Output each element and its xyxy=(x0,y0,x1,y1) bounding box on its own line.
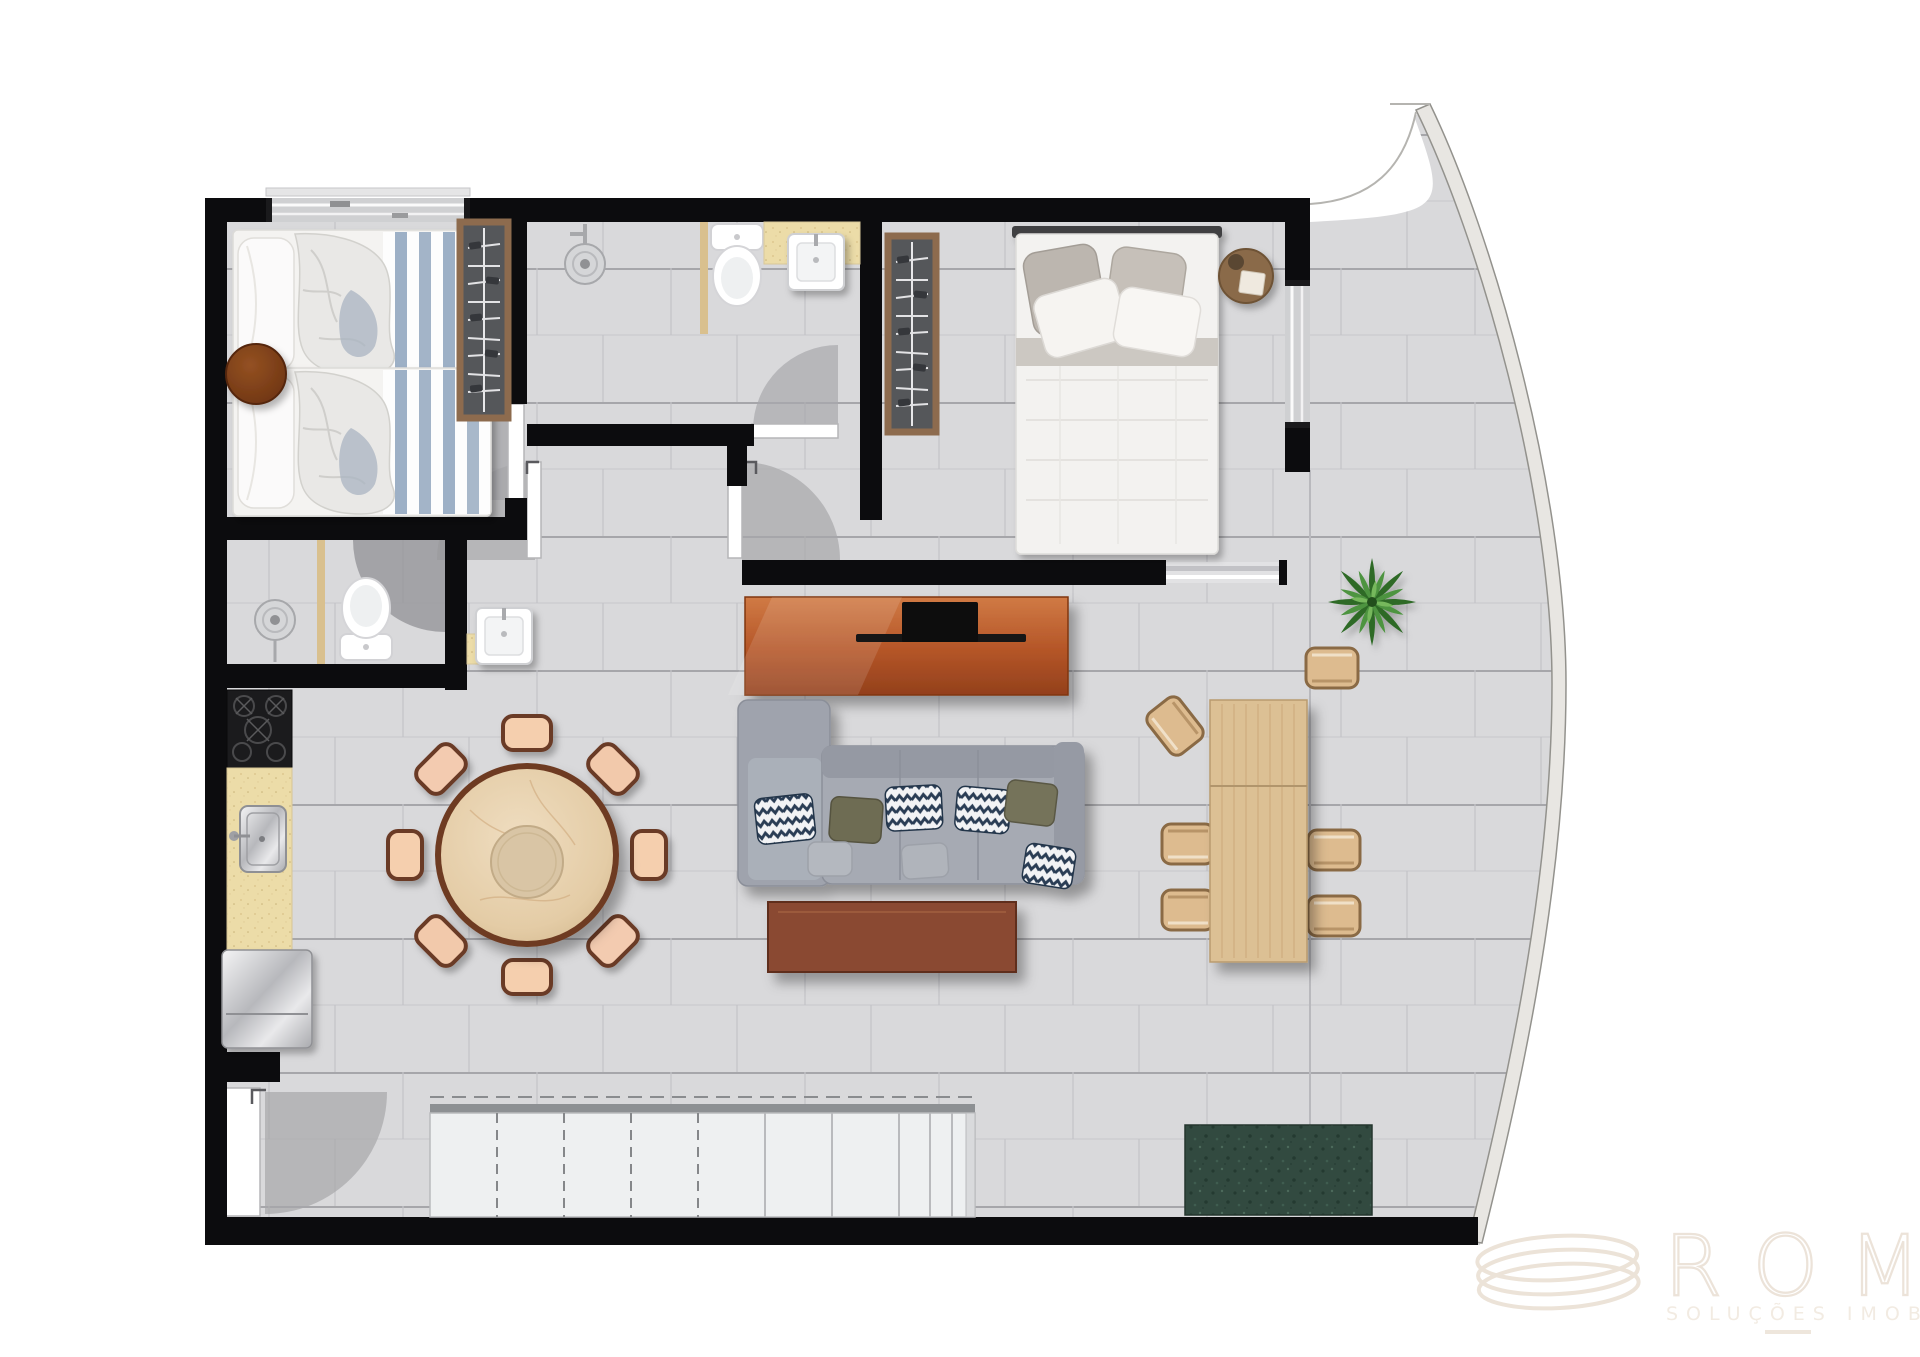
washbasin-icon xyxy=(788,234,844,290)
room-bedroom-twin xyxy=(226,222,508,516)
watermark-tagline: SOLUÇÕES IMOBILIÁRIAS xyxy=(1666,1302,1920,1325)
wood-chair-3 xyxy=(1162,824,1214,864)
window-bedroom-master xyxy=(1285,280,1310,428)
wall-bottom xyxy=(205,1217,1478,1245)
wood-table xyxy=(1210,700,1307,962)
wood-chair-4 xyxy=(1162,890,1214,930)
door-leaf-hall-left xyxy=(527,462,541,558)
double-bed xyxy=(1012,226,1222,554)
wall-bathroom-top-right xyxy=(860,198,882,520)
watermark: ROMA SOLUÇÕES IMOBILIÁRIAS xyxy=(1476,1217,1920,1334)
wall-bedroom-twin-bottom xyxy=(205,517,527,540)
shower-head-icon-2 xyxy=(255,600,295,640)
wall-bathroom-top-bottom xyxy=(527,424,754,446)
refrigerator xyxy=(222,950,312,1048)
wardrobe-twin xyxy=(460,222,508,418)
door-leaf-bathroom-top xyxy=(752,424,838,438)
wood-chair-2 xyxy=(1306,648,1358,688)
watermark-brand: ROMA xyxy=(1664,1217,1920,1315)
toilet-icon-2 xyxy=(340,578,392,660)
floor-plan-page: ROMA SOLUÇÕES IMOBILIÁRIAS xyxy=(0,0,1920,1357)
potted-plant xyxy=(1328,558,1416,646)
toilet-icon xyxy=(711,224,763,306)
granite-bench xyxy=(1185,1125,1372,1215)
cooktop xyxy=(227,690,292,768)
window-bedroom-twin xyxy=(266,188,470,222)
wardrobe-master xyxy=(888,236,936,432)
spiral-coil-logo-icon xyxy=(1476,1232,1640,1312)
washbasin-icon-2 xyxy=(476,608,532,664)
wall-left xyxy=(205,198,227,1245)
floor-plan-canvas: ROMA SOLUÇÕES IMOBILIÁRIAS xyxy=(0,0,1920,1357)
wall-stub-kitchen xyxy=(205,1052,280,1082)
shower-divider-2 xyxy=(317,540,325,664)
shower-head-icon xyxy=(565,244,605,284)
round-bedside-table xyxy=(1219,249,1273,303)
shower-divider xyxy=(700,222,708,334)
wall-bathroom-mid-bottom xyxy=(205,664,467,688)
wall-bedroom-master-bottom xyxy=(742,560,1160,585)
wall-bedroom-master-right-upper xyxy=(1285,198,1310,280)
wood-chair-6 xyxy=(1308,896,1360,936)
wall-bedroom-master-right-lower xyxy=(1285,428,1310,472)
tv-console xyxy=(728,597,1068,695)
sliding-balcony-door xyxy=(1158,560,1287,585)
wood-chair-5 xyxy=(1308,830,1360,870)
louvered-panels xyxy=(430,1097,975,1217)
round-side-table xyxy=(226,344,286,404)
